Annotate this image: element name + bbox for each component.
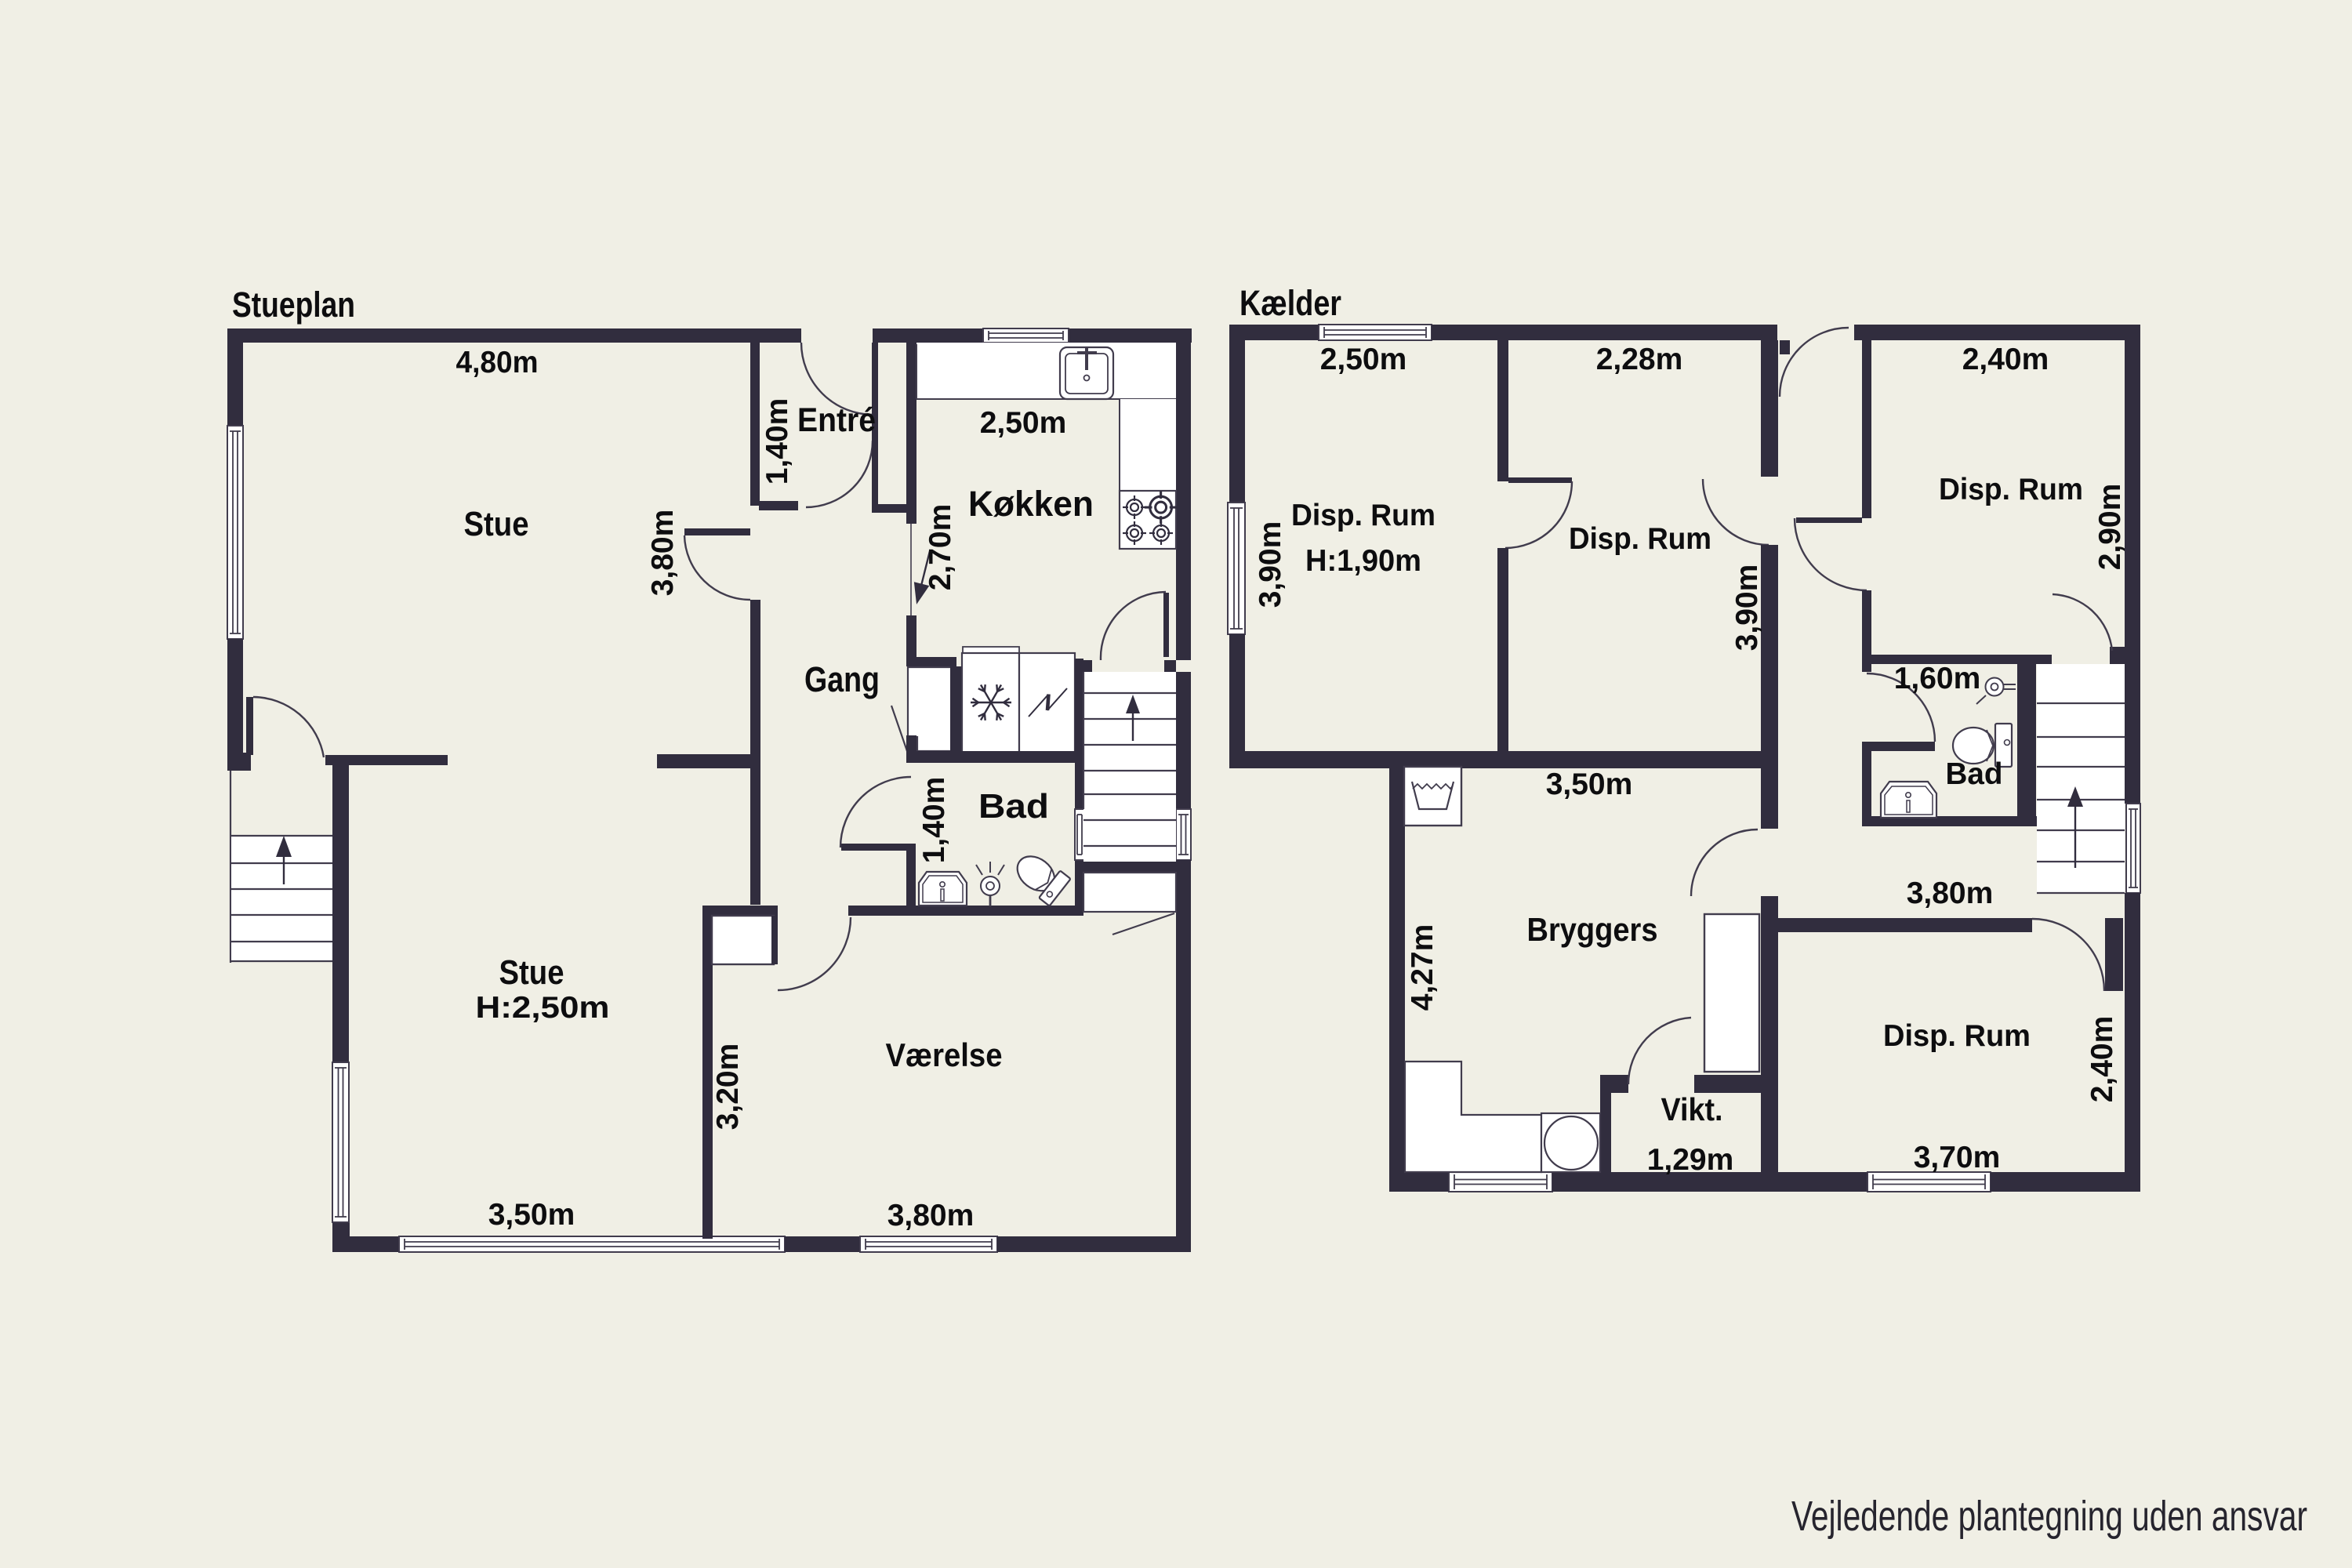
svg-text:3,50m: 3,50m bbox=[1546, 768, 1633, 801]
svg-text:2,70m: 2,70m bbox=[924, 504, 957, 591]
svg-text:2,50m: 2,50m bbox=[980, 406, 1067, 440]
svg-text:1,60m: 1,60m bbox=[1894, 662, 1981, 695]
svg-text:Bad: Bad bbox=[978, 787, 1049, 826]
svg-text:Stue: Stue bbox=[499, 953, 564, 992]
svg-text:Gang: Gang bbox=[804, 659, 880, 699]
svg-text:H:1,90m: H:1,90m bbox=[1305, 544, 1421, 578]
svg-text:Entré: Entré bbox=[797, 401, 876, 439]
svg-text:2,90m: 2,90m bbox=[2093, 484, 2127, 571]
svg-text:3,20m: 3,20m bbox=[711, 1044, 745, 1131]
svg-text:Disp. Rum: Disp. Rum bbox=[1939, 473, 2083, 506]
svg-text:2,40m: 2,40m bbox=[1962, 343, 2049, 376]
svg-text:4,27m: 4,27m bbox=[1406, 924, 1439, 1011]
svg-text:3,90m: 3,90m bbox=[1254, 521, 1287, 608]
svg-text:3,80m: 3,80m bbox=[646, 510, 680, 597]
svg-text:Stue: Stue bbox=[464, 505, 529, 543]
svg-text:4,80m: 4,80m bbox=[456, 346, 539, 379]
svg-text:2,50m: 2,50m bbox=[1320, 343, 1407, 376]
svg-text:Vikt.: Vikt. bbox=[1661, 1091, 1723, 1127]
svg-text:Bryggers: Bryggers bbox=[1527, 911, 1658, 948]
svg-text:Stueplan: Stueplan bbox=[232, 285, 355, 325]
svg-text:H:2,50m: H:2,50m bbox=[476, 991, 610, 1025]
svg-text:1,40m: 1,40m bbox=[760, 398, 794, 485]
svg-text:3,80m: 3,80m bbox=[887, 1199, 975, 1232]
svg-text:Værelse: Værelse bbox=[886, 1036, 1003, 1073]
svg-text:Kælder: Kælder bbox=[1240, 283, 1341, 323]
svg-text:Disp. Rum: Disp. Rum bbox=[1883, 1019, 2031, 1053]
svg-text:1,40m: 1,40m bbox=[917, 777, 951, 864]
svg-text:Bad: Bad bbox=[1946, 757, 2003, 791]
svg-text:Køkken: Køkken bbox=[968, 484, 1094, 524]
svg-text:3,50m: 3,50m bbox=[488, 1198, 575, 1232]
svg-text:2,28m: 2,28m bbox=[1596, 343, 1683, 376]
svg-text:Disp. Rum: Disp. Rum bbox=[1291, 499, 1436, 532]
svg-text:2,40m: 2,40m bbox=[2085, 1016, 2119, 1103]
svg-text:1,29m: 1,29m bbox=[1647, 1143, 1734, 1177]
svg-text:Vejledende plantegning uden an: Vejledende plantegning uden ansvar bbox=[1791, 1493, 2307, 1540]
svg-text:3,70m: 3,70m bbox=[1914, 1141, 2001, 1174]
svg-text:Disp. Rum: Disp. Rum bbox=[1569, 522, 1711, 556]
svg-text:3,80m: 3,80m bbox=[1907, 877, 1994, 910]
svg-text:3,90m: 3,90m bbox=[1730, 564, 1764, 652]
